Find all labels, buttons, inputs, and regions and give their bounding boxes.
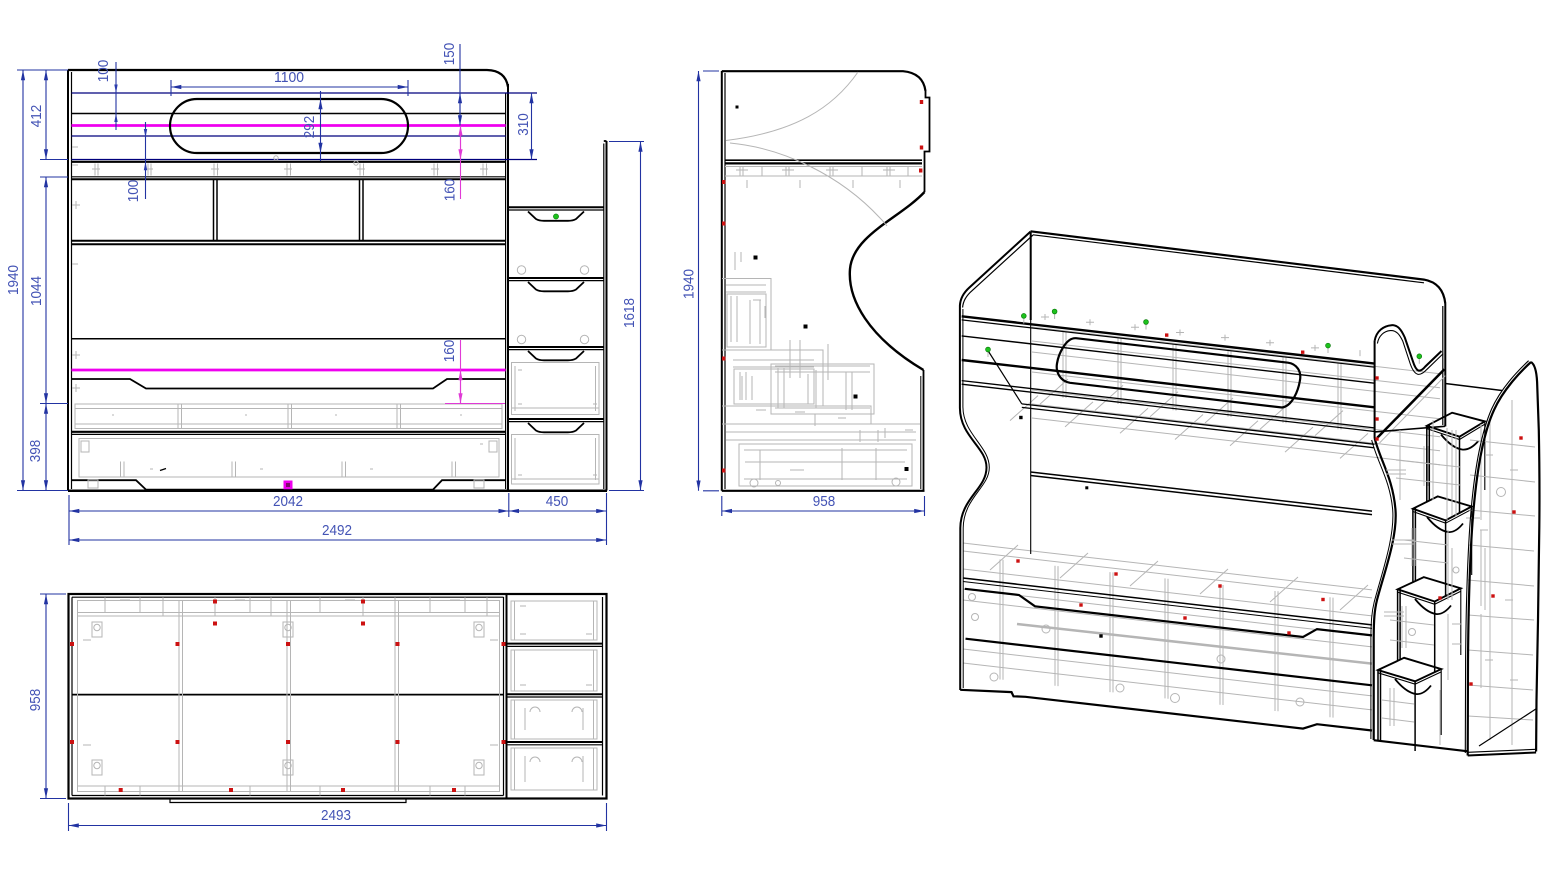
svg-text:2042: 2042 [273,493,303,510]
svg-text:958: 958 [27,689,44,712]
svg-text:160: 160 [441,179,458,202]
svg-text:100: 100 [125,180,142,203]
svg-text:2492: 2492 [322,522,352,539]
svg-text:2493: 2493 [321,807,351,824]
svg-text:1044: 1044 [28,276,45,306]
svg-text:1100: 1100 [274,69,304,86]
svg-text:958: 958 [813,493,836,510]
svg-text:292: 292 [301,116,318,139]
svg-text:100: 100 [95,60,112,83]
svg-text:450: 450 [546,493,569,510]
svg-text:150: 150 [441,43,458,66]
svg-text:1940: 1940 [5,265,22,295]
svg-text:398: 398 [27,440,44,463]
svg-text:310: 310 [515,113,532,136]
svg-text:1618: 1618 [621,298,638,328]
svg-text:412: 412 [28,105,45,128]
svg-text:1940: 1940 [680,269,697,299]
svg-text:160: 160 [441,340,458,363]
